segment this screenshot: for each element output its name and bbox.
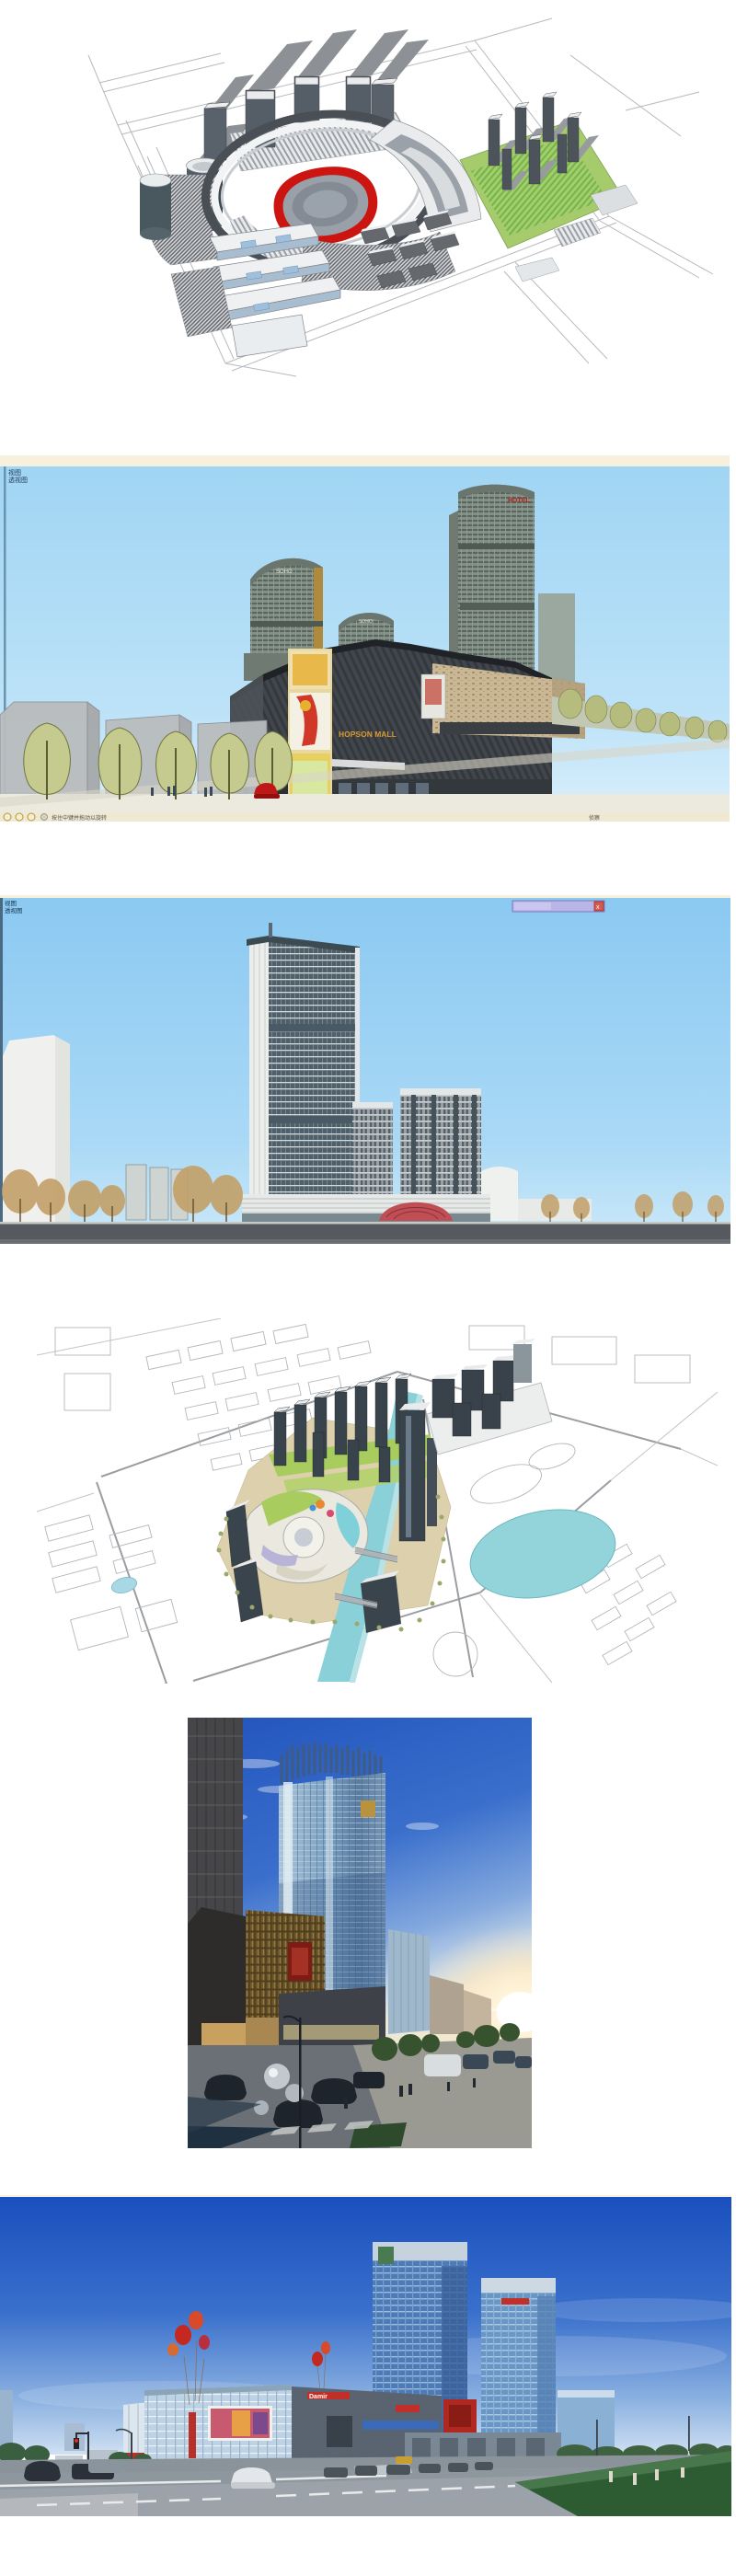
svg-text:侦察: 侦察 [589, 814, 600, 822]
svg-text:x: x [596, 904, 600, 911]
svg-text:透视图: 透视图 [8, 476, 28, 484]
svg-text:视图: 视图 [8, 468, 21, 477]
svg-text:HOPSON MALL: HOPSON MALL [339, 730, 397, 739]
svg-text:SOHO: SOHO [276, 569, 293, 575]
svg-text:Damir: Damir [309, 2394, 328, 2400]
svg-text:HOTEL: HOTEL [508, 498, 530, 504]
svg-text:按住中键并拖动以旋转: 按住中键并拖动以旋转 [52, 814, 107, 822]
svg-text:视图: 视图 [5, 899, 17, 907]
svg-text:透视图: 透视图 [5, 906, 23, 914]
svg-text:SOHO: SOHO [359, 619, 373, 625]
